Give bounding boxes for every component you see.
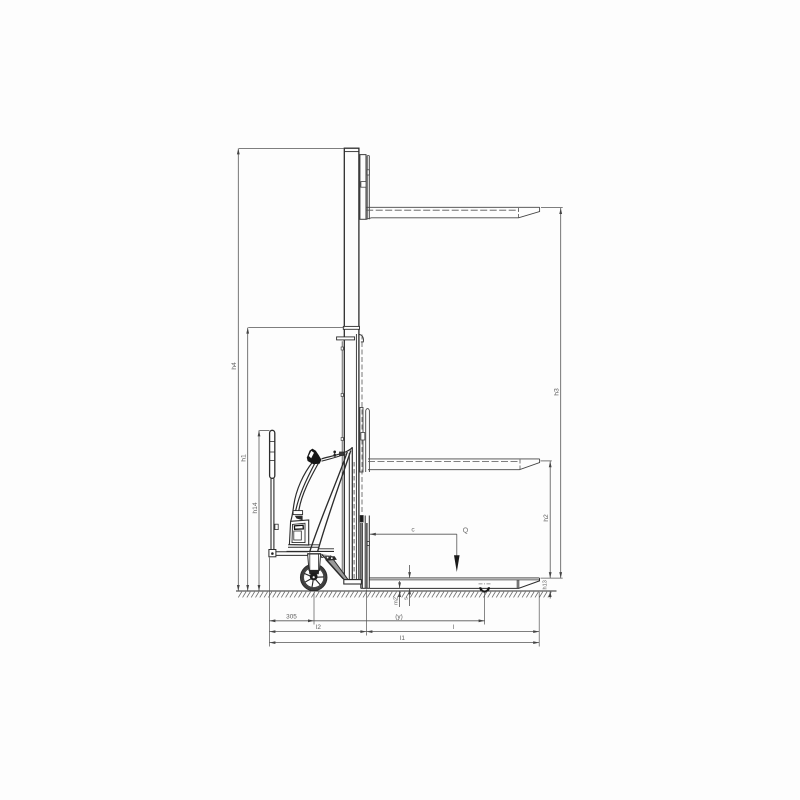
svg-text:h4: h4 bbox=[231, 362, 238, 370]
svg-text:305: 305 bbox=[286, 613, 297, 620]
svg-text:l: l bbox=[453, 624, 454, 631]
svg-text:h13: h13 bbox=[543, 580, 549, 589]
svg-text:h14: h14 bbox=[252, 502, 259, 514]
svg-text:h3: h3 bbox=[554, 388, 561, 396]
svg-text:s: s bbox=[403, 597, 409, 600]
svg-text:l1: l1 bbox=[400, 635, 405, 642]
svg-text:l2: l2 bbox=[316, 624, 321, 631]
svg-text:h2: h2 bbox=[543, 514, 550, 522]
svg-text:m2: m2 bbox=[393, 597, 399, 605]
svg-text:h1: h1 bbox=[241, 454, 248, 462]
svg-text:(y): (y) bbox=[395, 613, 402, 620]
svg-text:Q: Q bbox=[463, 527, 469, 534]
